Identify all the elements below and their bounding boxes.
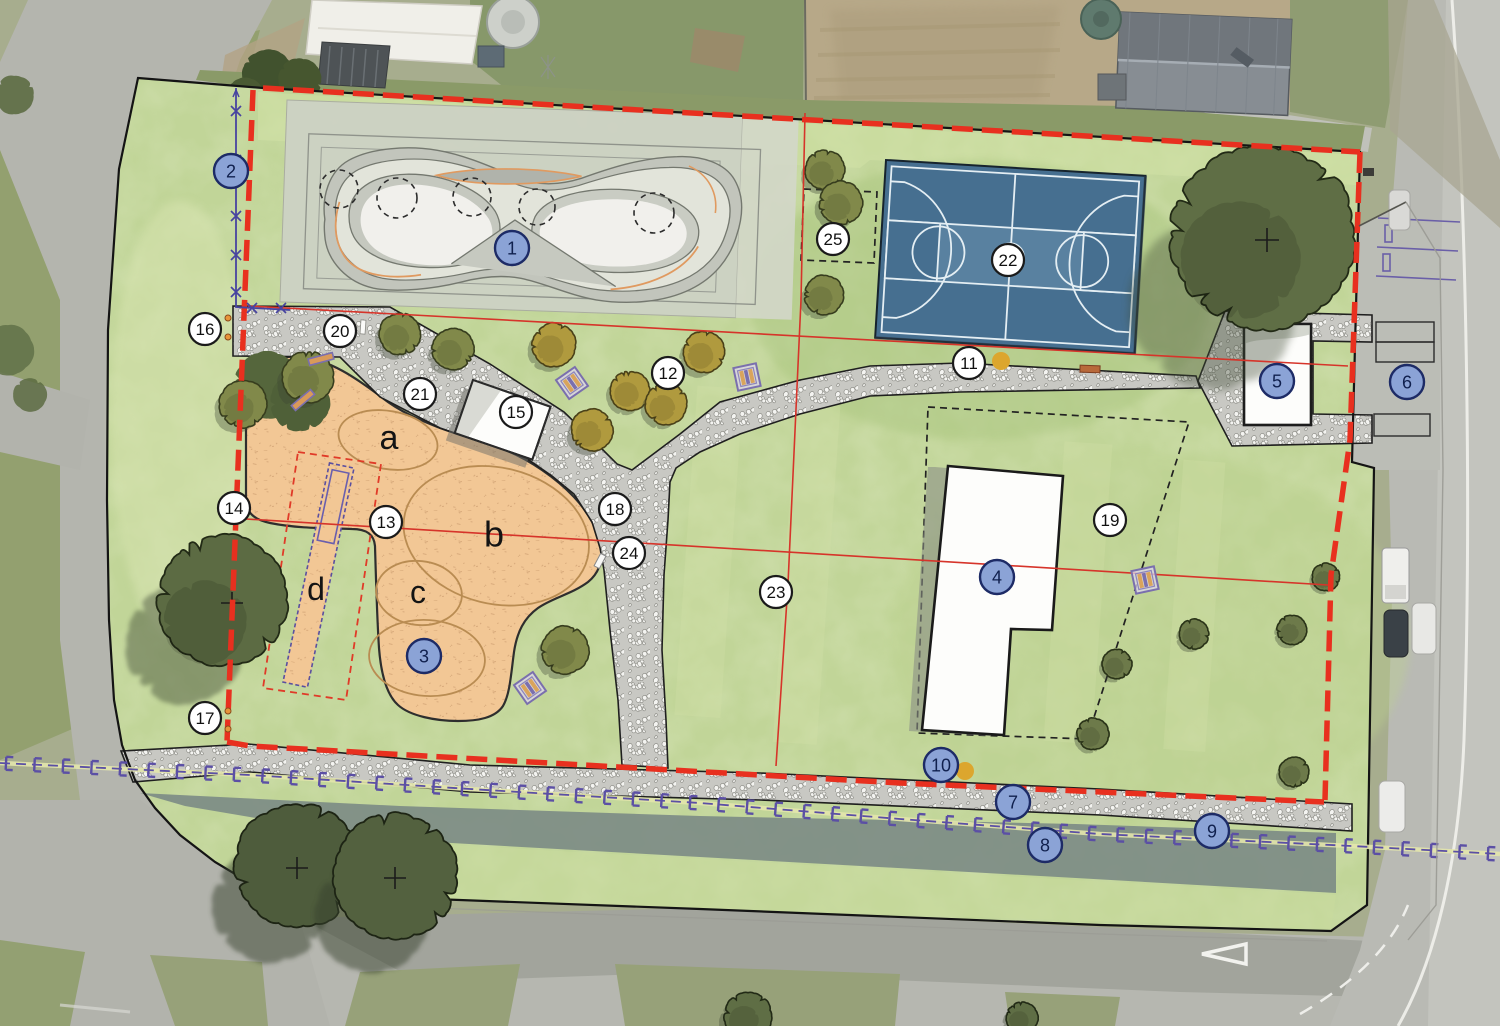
svg-text:22: 22	[999, 251, 1018, 270]
svg-text:18: 18	[606, 500, 625, 519]
svg-text:b: b	[484, 514, 504, 555]
svg-text:21: 21	[411, 385, 430, 404]
svg-text:5: 5	[1272, 372, 1282, 392]
svg-text:16: 16	[196, 320, 215, 339]
svg-text:11: 11	[960, 354, 978, 373]
svg-text:d: d	[307, 571, 325, 607]
svg-text:7: 7	[1008, 793, 1018, 813]
svg-text:4: 4	[992, 568, 1002, 588]
svg-text:13: 13	[377, 513, 396, 532]
svg-text:12: 12	[659, 364, 678, 383]
svg-text:23: 23	[767, 583, 786, 602]
svg-text:15: 15	[507, 403, 526, 422]
svg-text:19: 19	[1101, 511, 1120, 530]
svg-text:20: 20	[331, 322, 350, 341]
svg-text:10: 10	[931, 756, 951, 776]
svg-text:24: 24	[620, 544, 639, 563]
svg-text:1: 1	[507, 239, 517, 259]
svg-text:8: 8	[1040, 836, 1050, 856]
svg-text:2: 2	[226, 162, 236, 182]
svg-text:6: 6	[1402, 373, 1412, 393]
svg-text:3: 3	[419, 647, 429, 667]
svg-text:14: 14	[225, 499, 244, 518]
svg-text:9: 9	[1207, 822, 1217, 842]
svg-text:25: 25	[824, 230, 843, 249]
svg-text:a: a	[380, 419, 399, 457]
svg-text:c: c	[410, 574, 426, 610]
svg-text:17: 17	[196, 709, 215, 728]
